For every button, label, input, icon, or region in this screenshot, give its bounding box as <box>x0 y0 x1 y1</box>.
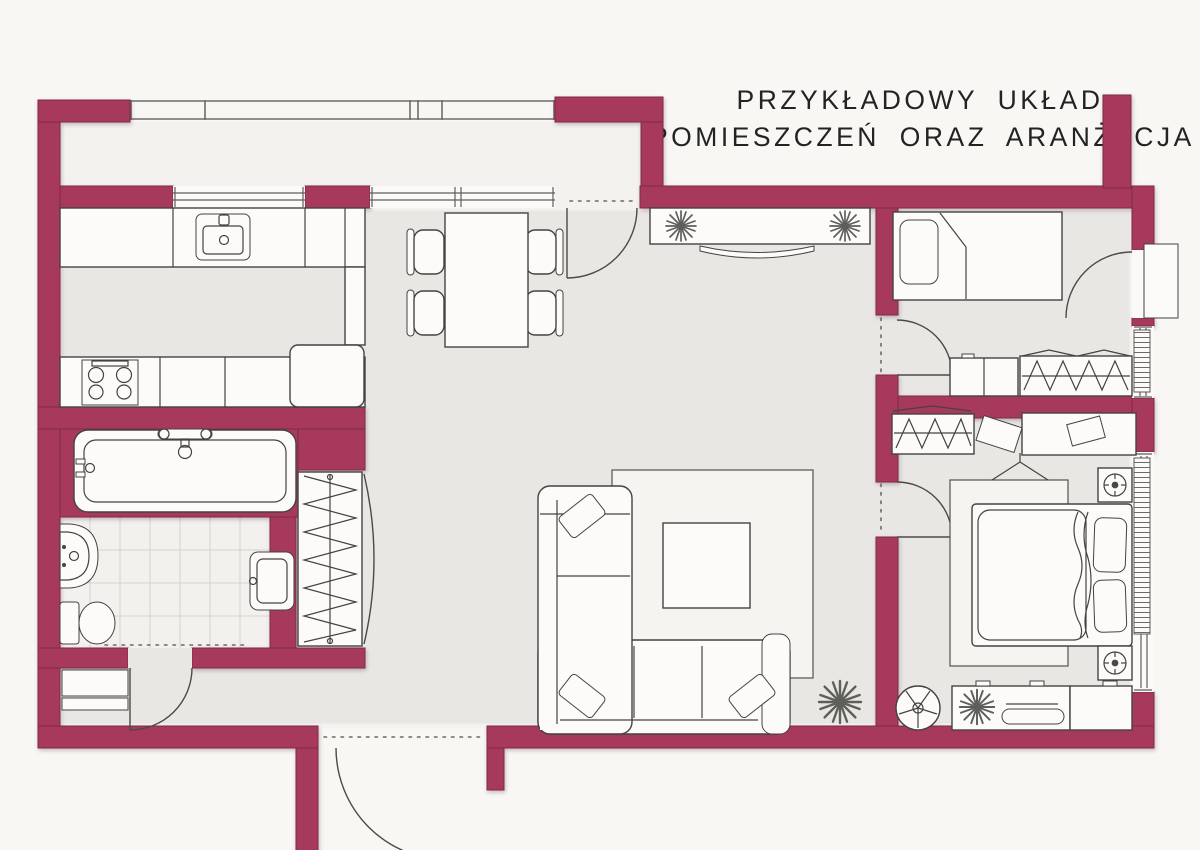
bedroom-small-window <box>1132 326 1154 398</box>
floorplan-drawing <box>0 0 1200 850</box>
lamp <box>1104 652 1126 674</box>
balcony-door-threshold-floor <box>555 186 640 208</box>
hall-wardrobe <box>298 472 374 646</box>
kitchen-window <box>173 186 305 208</box>
wall-kitchen-bath-divider <box>38 407 365 429</box>
wardrobe <box>1020 350 1132 396</box>
wall-bedrooms-3 <box>876 537 898 726</box>
dining-chair <box>526 229 563 275</box>
plant <box>960 690 995 725</box>
nightstand <box>1098 468 1132 502</box>
dining-chair <box>407 229 444 275</box>
balcony-railing <box>130 100 555 120</box>
tv <box>1002 709 1064 724</box>
radiator <box>1134 458 1150 634</box>
single-bed <box>893 212 1062 300</box>
dining-window <box>370 186 555 208</box>
fridge <box>290 345 364 407</box>
plant <box>666 211 696 241</box>
tall-cabinet <box>345 267 365 345</box>
lamp <box>1104 474 1126 496</box>
wall-right-1 <box>1132 186 1154 250</box>
balcony-partition-v <box>641 122 663 186</box>
entry-stub-left <box>296 748 318 850</box>
floorplan-page: PRZYKŁADOWY UKŁAD POMIESZCZEŃ ORAZ ARANŻ… <box>0 0 1200 850</box>
floor-plant <box>819 681 861 723</box>
bathtub <box>74 429 296 512</box>
dining-table <box>445 213 528 347</box>
nightstand <box>1098 646 1132 680</box>
round-chair <box>896 686 940 730</box>
toilet <box>60 602 115 644</box>
wall-bath-bottom-b <box>192 648 365 668</box>
entrance-door <box>324 737 482 850</box>
wall-right-2 <box>1132 318 1154 326</box>
dining-chair <box>407 290 444 336</box>
pillow <box>1093 579 1127 632</box>
bedroom-dresser <box>952 681 1132 730</box>
wall-top-left-bar <box>38 100 130 122</box>
dresser <box>950 354 1018 396</box>
wall-bottom-a <box>38 726 318 748</box>
washer-basin <box>250 552 295 610</box>
bedroom-master-window <box>1132 452 1154 692</box>
balcony-partition-h <box>555 97 663 122</box>
hob <box>82 360 138 405</box>
balcony-pier <box>1103 95 1131 188</box>
entry-stub-right <box>487 748 504 790</box>
balcony-floor <box>60 122 640 186</box>
pillow <box>900 220 938 284</box>
dining-chair <box>526 290 563 336</box>
wall-top-c <box>640 186 1132 208</box>
hall-bench <box>62 670 128 696</box>
door-leaf <box>1144 244 1178 318</box>
kitchen-sink <box>196 214 250 260</box>
wall-bath-bottom-a <box>38 648 128 668</box>
plant <box>830 211 860 241</box>
hall-bench-shelf <box>62 698 128 710</box>
wall-top-b <box>305 186 370 208</box>
pillow <box>1093 517 1127 572</box>
coffee-table <box>663 523 750 608</box>
wall-top-a <box>60 186 173 208</box>
radiator <box>1134 330 1150 392</box>
double-bed <box>972 504 1132 646</box>
